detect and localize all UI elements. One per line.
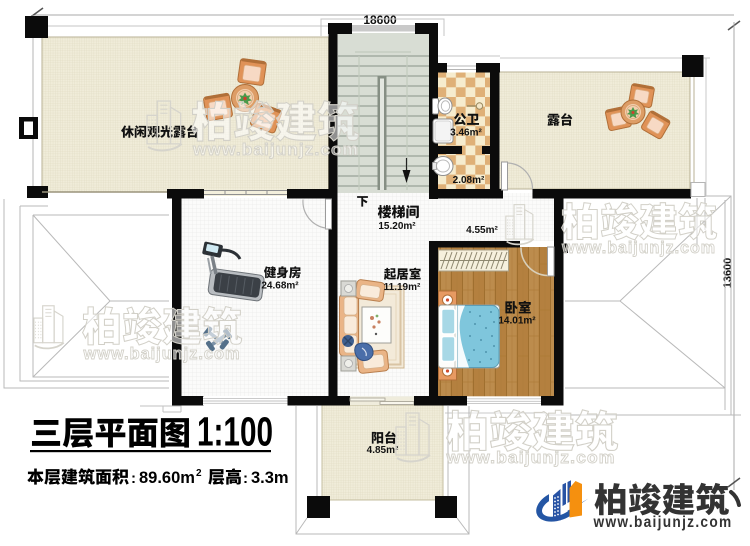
svg-text:14.01m²: 14.01m²: [498, 316, 536, 327]
svg-text:24.68m²: 24.68m²: [261, 281, 299, 292]
svg-text:www.baijunjz.com: www.baijunjz.com: [561, 238, 716, 257]
svg-text:2: 2: [196, 468, 202, 479]
svg-text:www.baijunjz.com: www.baijunjz.com: [445, 448, 615, 467]
svg-text::: :: [131, 470, 136, 487]
svg-text:18600: 18600: [363, 13, 397, 27]
svg-text:4.85m²: 4.85m²: [367, 445, 399, 456]
svg-text::: :: [243, 470, 248, 487]
svg-text:2.08m²: 2.08m²: [453, 175, 485, 186]
svg-text:3.3m: 3.3m: [251, 469, 289, 487]
svg-text:89.60m: 89.60m: [139, 469, 195, 487]
svg-text:15.20m²: 15.20m²: [378, 221, 416, 232]
svg-text:3.46m²: 3.46m²: [450, 128, 482, 139]
svg-text:www.baijunjz.com: www.baijunjz.com: [192, 140, 359, 159]
svg-text:www.baijunjz.com: www.baijunjz.com: [593, 514, 733, 531]
svg-text:4.55m²: 4.55m²: [466, 225, 498, 236]
svg-text:11.19m²: 11.19m²: [384, 282, 421, 293]
svg-text:www.baijunjz.com: www.baijunjz.com: [83, 344, 241, 363]
svg-text:1:100: 1:100: [197, 409, 273, 455]
svg-text:13600: 13600: [722, 258, 734, 289]
